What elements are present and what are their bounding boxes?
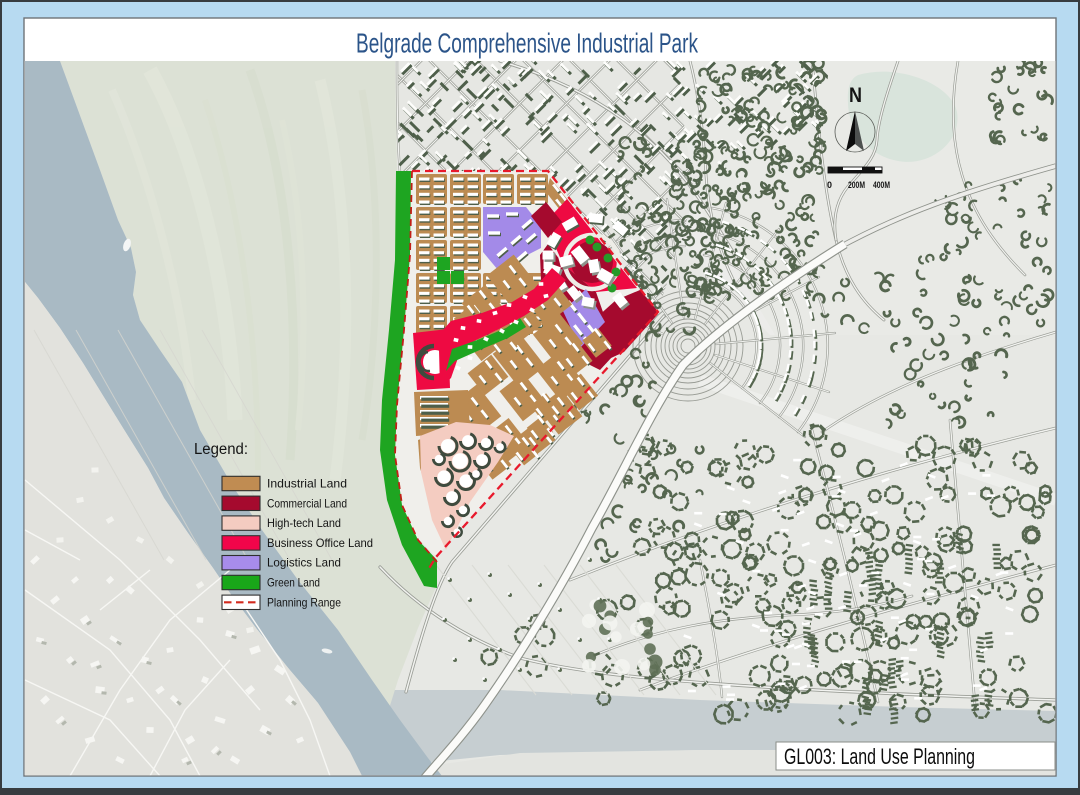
svg-text:Commercial Land: Commercial Land bbox=[267, 496, 347, 510]
svg-text:Belgrade Comprehensive Industr: Belgrade Comprehensive Industrial Park bbox=[356, 28, 698, 59]
svg-text:200M: 200M bbox=[848, 180, 865, 190]
svg-text:Planning Range: Planning Range bbox=[267, 595, 341, 609]
svg-text:High-tech Land: High-tech Land bbox=[267, 516, 341, 530]
svg-text:0: 0 bbox=[827, 180, 832, 190]
svg-text:Logistics Land: Logistics Land bbox=[267, 556, 341, 570]
svg-text:400M: 400M bbox=[873, 180, 890, 190]
svg-text:GL003: Land Use Planning: GL003: Land Use Planning bbox=[784, 744, 975, 769]
svg-text:Legend:: Legend: bbox=[194, 441, 248, 458]
svg-text:N: N bbox=[849, 84, 862, 107]
svg-text:Green Land: Green Land bbox=[267, 576, 320, 590]
svg-text:Industrial Land: Industrial Land bbox=[267, 477, 347, 491]
svg-text:Business Office Land: Business Office Land bbox=[267, 536, 373, 550]
